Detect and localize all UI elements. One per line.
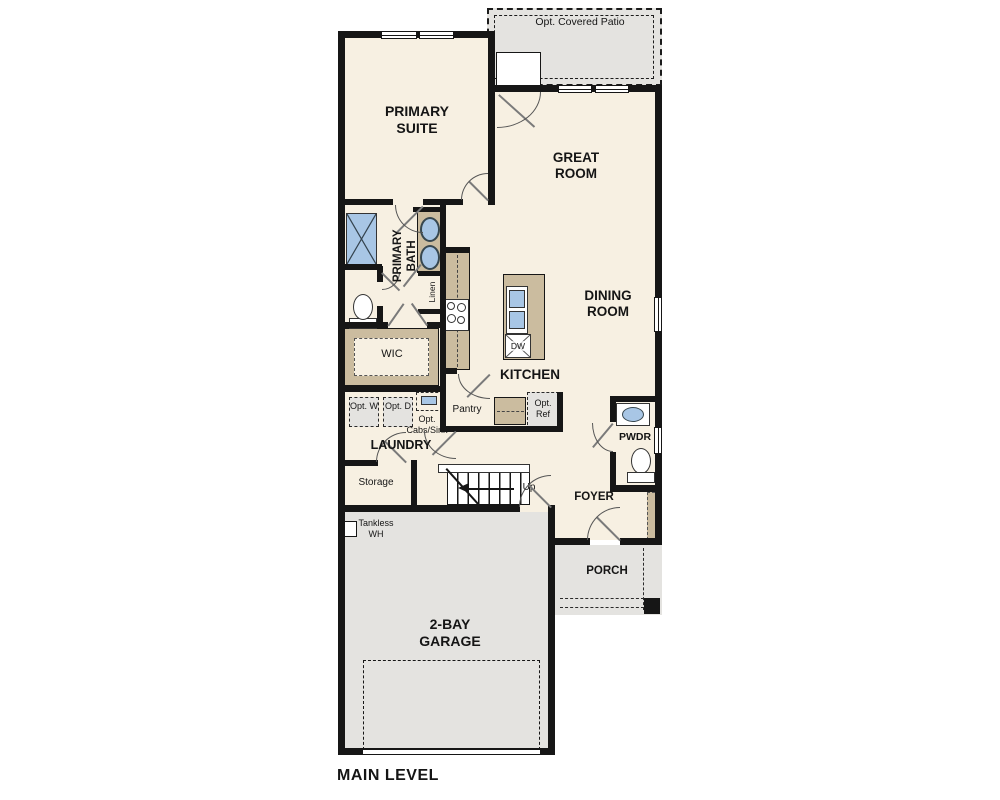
window <box>419 31 454 39</box>
porch-column <box>644 598 660 614</box>
porch-dashed-bottom <box>560 598 644 599</box>
wall <box>620 538 662 545</box>
patio-label: Opt. Covered Patio <box>510 16 650 29</box>
pwdr-sink-counter <box>616 403 650 426</box>
burner-icon <box>457 316 465 324</box>
wall <box>338 386 445 392</box>
sink-icon <box>622 407 644 422</box>
toilet-bowl <box>631 448 651 474</box>
wall <box>338 322 388 328</box>
opt-sink-box <box>416 392 443 411</box>
dw-label: DW <box>506 341 530 351</box>
dining-room-label: DINING ROOM <box>572 288 644 320</box>
garage-door <box>363 749 540 755</box>
laundry-label: LAUNDRY <box>358 438 444 453</box>
opt-ref-label: Opt. Ref <box>528 398 558 420</box>
shower-x-icon <box>347 214 376 264</box>
primary-bath-label: PRIMARY BATH <box>392 222 420 290</box>
window <box>558 85 592 93</box>
primary-suite-label: PRIMARY SUITE <box>372 103 462 137</box>
foyer-label: FOYER <box>563 491 625 505</box>
sink-basin <box>509 311 525 329</box>
cooktop <box>444 299 469 331</box>
burner-icon <box>447 314 456 323</box>
pantry-label: Pantry <box>443 404 491 416</box>
stair-arrow-icon <box>458 483 469 493</box>
window <box>381 31 417 39</box>
porch-label: PORCH <box>575 565 639 579</box>
sink-basin <box>509 290 525 308</box>
garage-door-clearance <box>363 660 540 750</box>
wall <box>440 368 457 374</box>
wall <box>441 426 562 432</box>
burner-icon <box>447 302 455 310</box>
toilet-bowl <box>353 294 373 320</box>
counter-centerline <box>497 411 524 412</box>
porch-dashed-bottom2 <box>560 607 644 608</box>
window <box>654 297 662 332</box>
wall <box>610 396 660 402</box>
pwdr-label: PWDR <box>613 431 657 444</box>
burner-icon <box>457 303 466 312</box>
storage-label: Storage <box>344 477 408 489</box>
wall <box>557 392 563 432</box>
sink-icon <box>420 217 440 242</box>
stair-direction-line <box>468 488 514 490</box>
stair-landing-strip <box>438 464 530 473</box>
opt-w-label: Opt. W <box>350 401 378 412</box>
island-sink <box>506 286 528 334</box>
hall-counter <box>494 397 526 425</box>
toilet-tank <box>627 472 655 483</box>
kitchen-label: KITCHEN <box>490 367 570 383</box>
shower <box>346 213 377 265</box>
wall <box>488 31 495 205</box>
window <box>595 85 629 93</box>
wall <box>440 205 446 432</box>
wic-label: WIC <box>367 348 417 361</box>
wall <box>345 199 393 205</box>
wall <box>338 460 378 466</box>
wall <box>338 31 345 755</box>
wall <box>338 264 382 270</box>
main-level-title: MAIN LEVEL <box>337 766 457 785</box>
sink-basin <box>421 396 437 405</box>
dishwasher: DW <box>505 334 531 358</box>
patio-step <box>496 52 541 86</box>
floor-plan: Opt. Covered Patio DW Opt. Ref <box>0 0 1000 800</box>
wall <box>338 505 520 512</box>
wall <box>411 460 417 511</box>
sink-icon <box>420 245 440 270</box>
wall <box>440 247 470 253</box>
great-room-label: GREAT ROOM <box>540 150 612 182</box>
opt-d-label: Opt. D <box>384 401 412 412</box>
tankless-wh-label: Tankless WH <box>352 518 400 540</box>
linen-label: Linen <box>427 274 437 310</box>
garage-label: 2-BAY GARAGE <box>405 616 495 650</box>
wall <box>548 538 590 545</box>
